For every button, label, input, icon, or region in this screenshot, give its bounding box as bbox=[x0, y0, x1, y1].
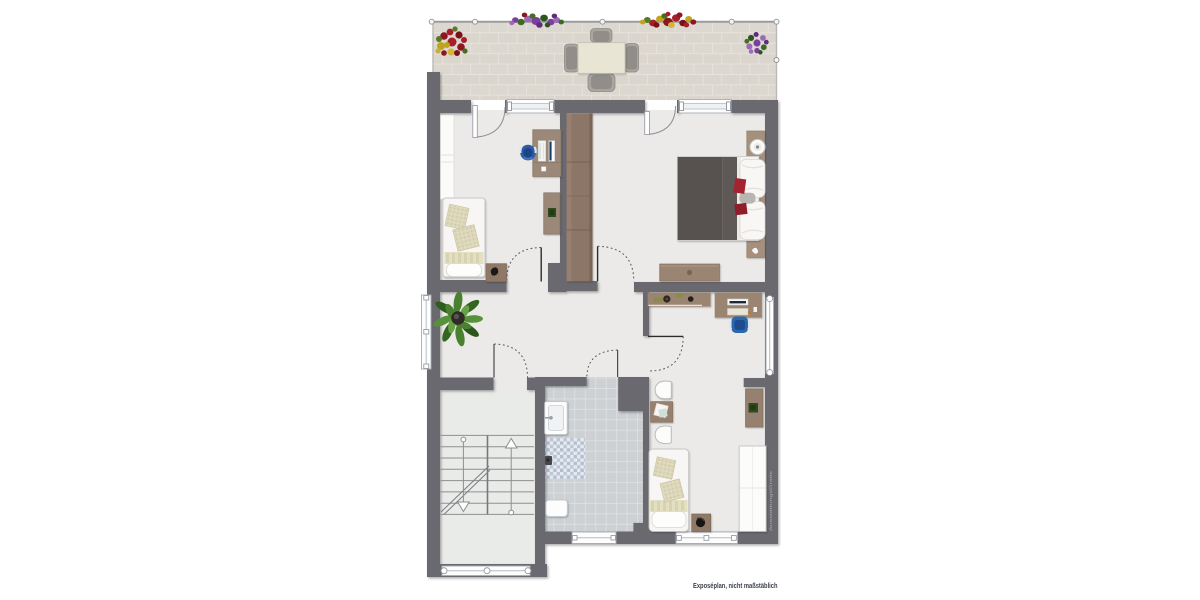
svg-text:AusstattungsGrafik: AusstattungsGrafik bbox=[769, 471, 773, 531]
svg-text:Exposéplan, nicht maßstäblich: Exposéplan, nicht maßstäblich bbox=[693, 581, 778, 590]
